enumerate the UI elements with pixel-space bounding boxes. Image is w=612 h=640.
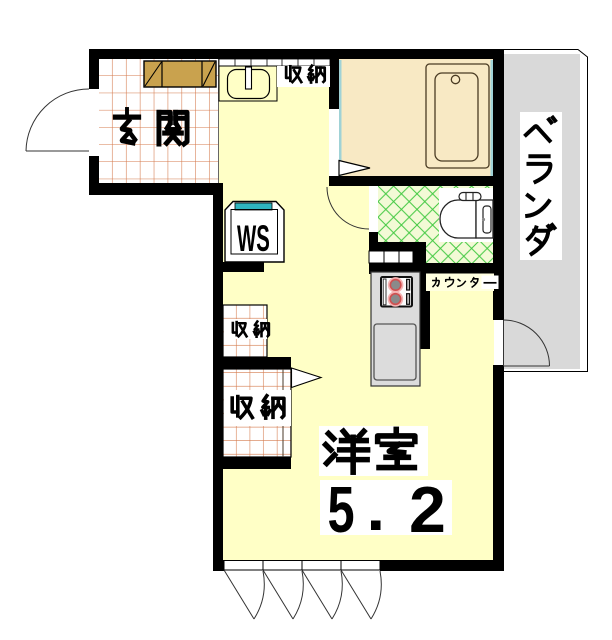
svg-text:WS: WS <box>237 219 270 260</box>
svg-text:2: 2 <box>409 474 446 546</box>
svg-text:5: 5 <box>328 474 355 546</box>
